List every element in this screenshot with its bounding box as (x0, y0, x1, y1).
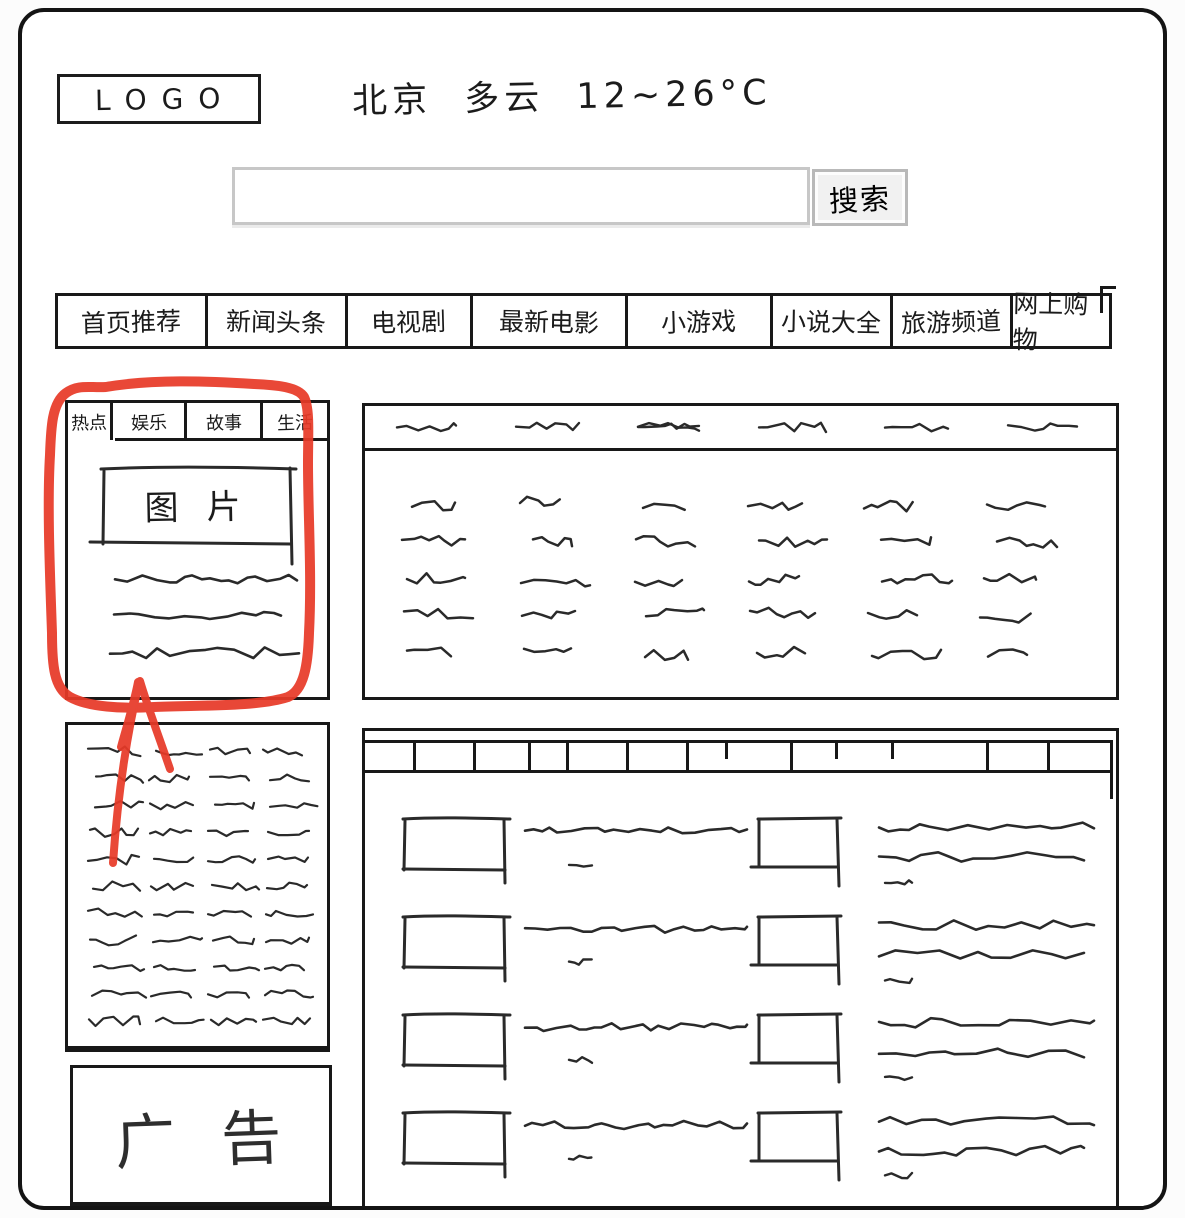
thumbnail-placeholder[interactable] (758, 915, 835, 965)
link-squiggle[interactable] (268, 799, 319, 812)
squiggle-graphic (523, 1117, 748, 1133)
image-placeholder[interactable]: 图片 (103, 466, 286, 543)
squiggle-graphic (883, 420, 949, 434)
squiggle-graphic (206, 988, 250, 1001)
link-squiggle[interactable] (206, 853, 260, 866)
search-button-label: 搜索 (828, 175, 892, 220)
squiggle-graphic (93, 799, 144, 812)
headline-squiggle[interactable] (113, 571, 298, 587)
news-link-squiggle[interactable] (982, 569, 1092, 587)
item-text-block (877, 1013, 1095, 1083)
squiggle-graphic (523, 823, 748, 839)
item-meta-squiggle (883, 975, 1095, 985)
squiggle-graphic (395, 420, 457, 434)
item-title-squiggle[interactable] (523, 823, 748, 839)
squiggle-graphic (758, 1013, 835, 1063)
item-meta-squiggle (567, 957, 748, 967)
item-title-squiggle[interactable] (877, 1113, 1095, 1129)
squiggle-graphic (264, 934, 310, 947)
news-link-squiggle[interactable] (995, 534, 1092, 552)
link-squiggle[interactable] (208, 772, 260, 785)
link-squiggle[interactable] (266, 826, 319, 839)
news-link-squiggle[interactable] (402, 605, 511, 623)
link-squiggle[interactable] (211, 934, 260, 947)
tab-divider (566, 743, 569, 770)
squiggle-graphic (88, 934, 137, 947)
squiggle-graphic (213, 799, 255, 812)
news-module (362, 403, 1119, 700)
squiggle-graphic (757, 533, 828, 551)
squiggle-graphic (643, 646, 689, 664)
item-meta-squiggle (883, 1073, 1095, 1083)
nav-item-latest-movies[interactable]: 最新电影 (473, 296, 628, 346)
squiggle-graphic (266, 826, 310, 839)
link-squiggle[interactable] (147, 772, 205, 785)
news-header-link[interactable] (636, 420, 700, 434)
logo-text: LOGO (83, 81, 236, 117)
link-squiggle[interactable] (213, 799, 260, 812)
list-item (758, 817, 1108, 915)
squiggle-graphic (90, 988, 147, 1001)
news-link-squiggle[interactable] (866, 606, 976, 624)
squiggle-graphic (520, 606, 576, 624)
item-title-squiggle[interactable] (523, 1117, 748, 1133)
link-squiggle[interactable] (263, 988, 319, 1001)
thumbnail-placeholder[interactable] (403, 817, 503, 871)
squiggle-graphic (403, 1111, 503, 1165)
squiggle-graphic (518, 493, 561, 511)
squiggle-graphic (633, 572, 683, 590)
squiggle-graphic (206, 907, 252, 920)
link-squiggle[interactable] (94, 772, 147, 785)
link-squiggle[interactable] (206, 826, 260, 839)
squiggle-graphic (567, 1055, 593, 1065)
tab-divider (891, 743, 894, 759)
squiggle-graphic (636, 420, 700, 434)
news-header-link[interactable] (395, 420, 457, 434)
squiggle-graphic (151, 934, 203, 947)
link-squiggle[interactable] (152, 907, 205, 920)
squiggle-graphic (208, 745, 251, 758)
squiggle-graphic (405, 643, 452, 661)
squiggle-graphic (206, 826, 249, 839)
squiggle-graphic (877, 1113, 1095, 1129)
item-text-block (877, 817, 1095, 887)
squiggle-graphic (880, 571, 953, 589)
thumbnail-placeholder[interactable] (758, 1013, 835, 1063)
squiggle-graphic (877, 819, 1095, 835)
item-meta-squiggle (883, 877, 1095, 887)
nav-item-label: 新闻头条 (226, 302, 327, 340)
squiggle-graphic (995, 534, 1058, 552)
squiggle-graphic (877, 947, 1085, 963)
link-squiggle[interactable] (206, 988, 260, 1001)
squiggle-graphic (400, 532, 466, 550)
news-link-squiggle[interactable] (985, 498, 1092, 516)
squiggle-graphic (402, 605, 474, 623)
squiggle-graphic (986, 645, 1028, 663)
tab-bar-underline (115, 438, 327, 441)
link-squiggle[interactable] (86, 853, 147, 866)
squiggle-graphic (982, 569, 1037, 587)
squiggle-graphic (261, 1015, 311, 1028)
tab-divider (473, 743, 476, 770)
link-squiggle[interactable] (93, 799, 147, 812)
category-tab-strip[interactable] (365, 740, 1113, 773)
news-header-link[interactable] (883, 420, 949, 434)
link-squiggle[interactable] (149, 880, 205, 893)
news-link-squiggle[interactable] (862, 497, 976, 515)
link-list-module (65, 722, 330, 1052)
link-squiggle[interactable] (265, 880, 319, 893)
squiggle-graphic (877, 1143, 1085, 1159)
news-link-squiggle[interactable] (410, 496, 511, 514)
tab-label: 娱乐 (130, 408, 167, 435)
squiggle-graphic (87, 1015, 141, 1028)
news-link-squiggle[interactable] (880, 571, 976, 589)
news-header-link[interactable] (757, 420, 827, 434)
news-link-squiggle[interactable] (531, 533, 627, 551)
tab-label: 热点 (71, 408, 108, 435)
tab-divider (835, 743, 838, 759)
squiggle-graphic (108, 643, 300, 661)
thumbnail-placeholder[interactable] (403, 1013, 503, 1067)
sketch-overshoot-line (1110, 773, 1113, 799)
nav-item-label: 旅游频道 (901, 302, 1002, 341)
nav-item-online-shopping[interactable]: 网上购物 (1013, 296, 1109, 346)
squiggle-graphic (112, 607, 282, 623)
squiggle-graphic (748, 604, 816, 622)
item-meta-squiggle (567, 1055, 748, 1065)
link-squiggle[interactable] (208, 745, 260, 758)
item-meta-squiggle (567, 1153, 748, 1163)
item-title-squiggle[interactable] (877, 849, 1095, 865)
news-link-squiggle[interactable] (879, 533, 976, 551)
squiggle-graphic (268, 799, 319, 812)
squiggle-graphic (149, 988, 192, 1001)
list-item (758, 1013, 1108, 1111)
nav-item-travel-channel[interactable]: 旅游频道 (893, 296, 1013, 346)
tab-divider (686, 743, 689, 770)
link-squiggle[interactable] (148, 826, 205, 839)
news-link-squiggle[interactable] (400, 532, 511, 550)
link-squiggle[interactable] (152, 961, 205, 974)
squiggle-graphic (265, 880, 308, 893)
squiggle-graphic (154, 1015, 205, 1028)
item-text-block (877, 915, 1095, 985)
squiggle-graphic (567, 859, 593, 869)
squiggle-graphic (567, 1153, 593, 1163)
squiggle-graphic (86, 907, 143, 920)
squiggle-graphic (403, 817, 503, 871)
link-squiggle[interactable] (92, 961, 147, 974)
thumbnail-placeholder[interactable] (403, 1111, 503, 1165)
squiggle-graphic (209, 1015, 257, 1028)
squiggle-graphic (755, 643, 806, 661)
nav-item-mini-games[interactable]: 小游戏 (628, 296, 773, 346)
squiggle-graphic (883, 877, 913, 887)
link-squiggle[interactable] (86, 745, 147, 758)
link-squiggle[interactable] (88, 934, 147, 947)
nav-item-label: 首页推荐 (81, 302, 182, 341)
link-squiggle[interactable] (88, 826, 147, 839)
tab-divider (1047, 743, 1050, 770)
squiggle-graphic (261, 745, 303, 758)
news-link-squiggle[interactable] (634, 532, 743, 550)
content-list (403, 817, 1108, 1209)
item-title-squiggle[interactable] (877, 947, 1095, 963)
squiggle-graphic (522, 641, 572, 659)
squiggle-graphic (154, 745, 203, 758)
squiggle-graphic (88, 826, 139, 839)
headline-squiggle[interactable] (108, 643, 300, 659)
squiggle-graphic (866, 606, 918, 624)
tab-story[interactable]: 故事 (187, 403, 263, 440)
squiggle-graphic (86, 853, 140, 866)
nav-item-tv-series[interactable]: 电视剧 (348, 296, 473, 346)
news-header-link[interactable] (514, 420, 580, 434)
list-item (403, 817, 758, 915)
news-link-squiggle[interactable] (870, 646, 976, 664)
squiggle-graphic (862, 497, 914, 515)
squiggle-graphic (113, 571, 298, 587)
squiggle-graphic (148, 799, 194, 812)
search-input[interactable] (232, 167, 810, 225)
squiggle-graphic (147, 772, 190, 785)
news-tabs-row (365, 406, 1116, 451)
squiggle-graphic (978, 608, 1032, 626)
news-links-grid (365, 451, 1116, 659)
tab-life[interactable]: 生活 (263, 403, 327, 440)
squiggle-graphic (877, 1015, 1095, 1031)
squiggle-graphic (870, 646, 942, 664)
list-item (758, 915, 1108, 1013)
squiggle-graphic (268, 772, 310, 785)
ad-label: 广告 (74, 1087, 329, 1183)
tab-hot[interactable]: 热点 (68, 403, 113, 440)
squiggle-graphic (746, 496, 803, 514)
news-link-squiggle[interactable] (641, 498, 743, 516)
squiggle-graphic (266, 853, 309, 866)
list-item (758, 1111, 1108, 1209)
nav-item-news-headlines[interactable]: 新闻头条 (208, 296, 348, 346)
squiggle-graphic (152, 961, 196, 974)
tab-divider (626, 743, 629, 770)
nav-item-label: 网上购物 (1012, 284, 1109, 358)
list-item (403, 915, 758, 1013)
news-link-squiggle[interactable] (757, 533, 859, 551)
item-title-squiggle[interactable] (877, 917, 1095, 933)
link-squiggle[interactable] (149, 988, 205, 1001)
item-title-squiggle[interactable] (523, 1019, 748, 1035)
thumbnail-placeholder[interactable] (403, 915, 503, 969)
nav-item-novels[interactable]: 小说大全 (773, 296, 893, 346)
image-placeholder-label: 图片 (102, 464, 286, 544)
squiggle-graphic (92, 961, 145, 974)
main-nav: 首页推荐 新闻头条 电视剧 最新电影 小游戏 小说大全 旅游频道 网上购物 (55, 293, 1112, 349)
link-squiggle[interactable] (87, 1015, 147, 1028)
squiggle-graphic (523, 1019, 748, 1035)
link-squiggle[interactable] (261, 1015, 319, 1028)
list-item (403, 1111, 758, 1209)
link-squiggle[interactable] (90, 988, 147, 1001)
squiggle-graphic (514, 420, 580, 434)
squiggle-graphic (94, 772, 144, 785)
news-header-link[interactable] (1006, 420, 1078, 434)
squiggle-graphic (1006, 420, 1078, 434)
squiggle-graphic (883, 975, 913, 985)
tab-divider (413, 743, 416, 770)
sketch-corner-tick (1100, 286, 1116, 313)
squiggle-graphic (567, 957, 593, 967)
news-link-squiggle[interactable] (644, 605, 743, 623)
news-link-squiggle[interactable] (747, 571, 859, 589)
squiggle-graphic (263, 988, 314, 1001)
item-title-squiggle[interactable] (877, 819, 1095, 835)
link-squiggle[interactable] (264, 907, 319, 920)
squiggle-graphic (263, 961, 305, 974)
squiggle-graphic (758, 915, 835, 965)
link-squiggle[interactable] (86, 907, 147, 920)
news-link-squiggle[interactable] (748, 604, 859, 622)
news-link-squiggle[interactable] (520, 606, 627, 624)
squiggle-graphic (758, 817, 835, 867)
squiggle-graphic (985, 498, 1046, 516)
hot-module-tab-bar: 热点 娱乐 故事 生活 (68, 403, 327, 440)
link-squiggle[interactable] (212, 961, 260, 974)
link-squiggle[interactable] (263, 961, 319, 974)
squiggle-graphic (149, 880, 194, 893)
content-module (362, 728, 1119, 1206)
news-link-squiggle[interactable] (405, 643, 511, 661)
squiggle-graphic (758, 1111, 835, 1161)
news-link-squiggle[interactable] (755, 643, 859, 661)
site-logo[interactable]: LOGO (57, 74, 261, 124)
squiggle-graphic (152, 907, 194, 920)
squiggle-graphic (747, 571, 800, 589)
link-squiggle[interactable] (206, 907, 260, 920)
tab-label: 生活 (277, 408, 314, 435)
item-text-block (523, 915, 748, 967)
news-link-squiggle[interactable] (633, 572, 743, 590)
ad-banner[interactable]: 广告 (70, 1065, 332, 1206)
link-squiggle[interactable] (261, 745, 319, 758)
news-link-squiggle[interactable] (643, 646, 743, 664)
tab-entertainment[interactable]: 娱乐 (113, 403, 187, 440)
nav-item-homepage-recommend[interactable]: 首页推荐 (58, 296, 208, 346)
weather-text: 北京 多云 12~26°C (351, 57, 812, 129)
squiggle-graphic (148, 826, 192, 839)
squiggle-graphic (634, 532, 696, 550)
squiggle-graphic (206, 853, 256, 866)
nav-item-label: 小游戏 (661, 302, 737, 340)
squiggle-graphic (879, 533, 932, 551)
link-squiggle[interactable] (154, 745, 205, 758)
squiggle-graphic (403, 915, 503, 969)
squiggle-graphic (641, 498, 686, 516)
squiggle-graphic (403, 1013, 503, 1067)
item-text-block (523, 1111, 748, 1163)
list-item (403, 1013, 758, 1111)
item-title-squiggle[interactable] (877, 1045, 1095, 1061)
news-link-squiggle[interactable] (519, 572, 627, 590)
news-link-squiggle[interactable] (746, 496, 859, 514)
item-meta-squiggle (883, 1171, 1095, 1181)
squiggle-graphic (883, 1073, 913, 1083)
news-link-squiggle[interactable] (518, 493, 627, 511)
hot-topics-module: 热点 娱乐 故事 生活 图片 (65, 400, 330, 700)
page-frame: LOGO 北京 多云 12~26°C 搜索 首页推荐 新闻头条 电视剧 最新电影… (18, 8, 1167, 1210)
squiggle-graphic (644, 605, 705, 623)
item-text-block (523, 1013, 748, 1065)
thumbnail-placeholder[interactable] (758, 817, 835, 867)
link-squiggle[interactable] (209, 1015, 260, 1028)
tab-label: 故事 (205, 408, 242, 435)
thumbnail-placeholder[interactable] (758, 1111, 835, 1161)
squiggle-graphic (523, 921, 748, 937)
link-squiggle[interactable] (148, 799, 205, 812)
squiggle-graphic (86, 745, 142, 758)
headline-squiggle[interactable] (112, 607, 282, 623)
news-link-squiggle[interactable] (522, 641, 627, 659)
squiggle-graphic (91, 880, 141, 893)
squiggle-graphic (877, 917, 1095, 933)
link-squiggle[interactable] (152, 853, 205, 866)
tab-divider (790, 743, 793, 770)
item-title-squiggle[interactable] (877, 1143, 1095, 1159)
link-squiggle[interactable] (154, 1015, 205, 1028)
squiggle-graphic (405, 569, 466, 587)
tab-divider (986, 743, 989, 770)
link-squiggle[interactable] (151, 934, 205, 947)
news-link-squiggle[interactable] (978, 608, 1092, 626)
news-link-squiggle[interactable] (986, 645, 1092, 663)
link-squiggle[interactable] (264, 934, 319, 947)
nav-item-label: 最新电影 (499, 302, 600, 340)
squiggle-graphic (210, 880, 260, 893)
link-squiggle[interactable] (91, 880, 147, 893)
squiggle-graphic (208, 772, 250, 785)
item-title-squiggle[interactable] (523, 921, 748, 937)
squiggle-graphic (877, 1045, 1085, 1061)
nav-item-label: 小说大全 (781, 302, 882, 340)
tab-divider (528, 743, 531, 770)
squiggle-graphic (883, 1171, 913, 1181)
nav-item-label: 电视剧 (371, 302, 447, 340)
squiggle-graphic (757, 420, 827, 434)
link-squiggle[interactable] (266, 853, 319, 866)
squiggle-graphic (519, 572, 591, 590)
link-squiggle[interactable] (210, 880, 260, 893)
squiggle-graphic (152, 853, 195, 866)
squiggle-graphic (410, 496, 456, 514)
squiggle-graphic (877, 849, 1085, 865)
squiggle-graphic (264, 907, 314, 920)
item-meta-squiggle (567, 859, 748, 869)
link-squiggle[interactable] (268, 772, 319, 785)
item-text-block (877, 1111, 1095, 1181)
squiggle-graphic (531, 533, 573, 551)
news-link-squiggle[interactable] (405, 569, 511, 587)
squiggle-graphic (212, 961, 260, 974)
squiggle-graphic (211, 934, 255, 947)
item-title-squiggle[interactable] (877, 1015, 1095, 1031)
item-text-block (523, 817, 748, 869)
search-button[interactable]: 搜索 (812, 169, 908, 226)
tab-divider (725, 743, 728, 759)
